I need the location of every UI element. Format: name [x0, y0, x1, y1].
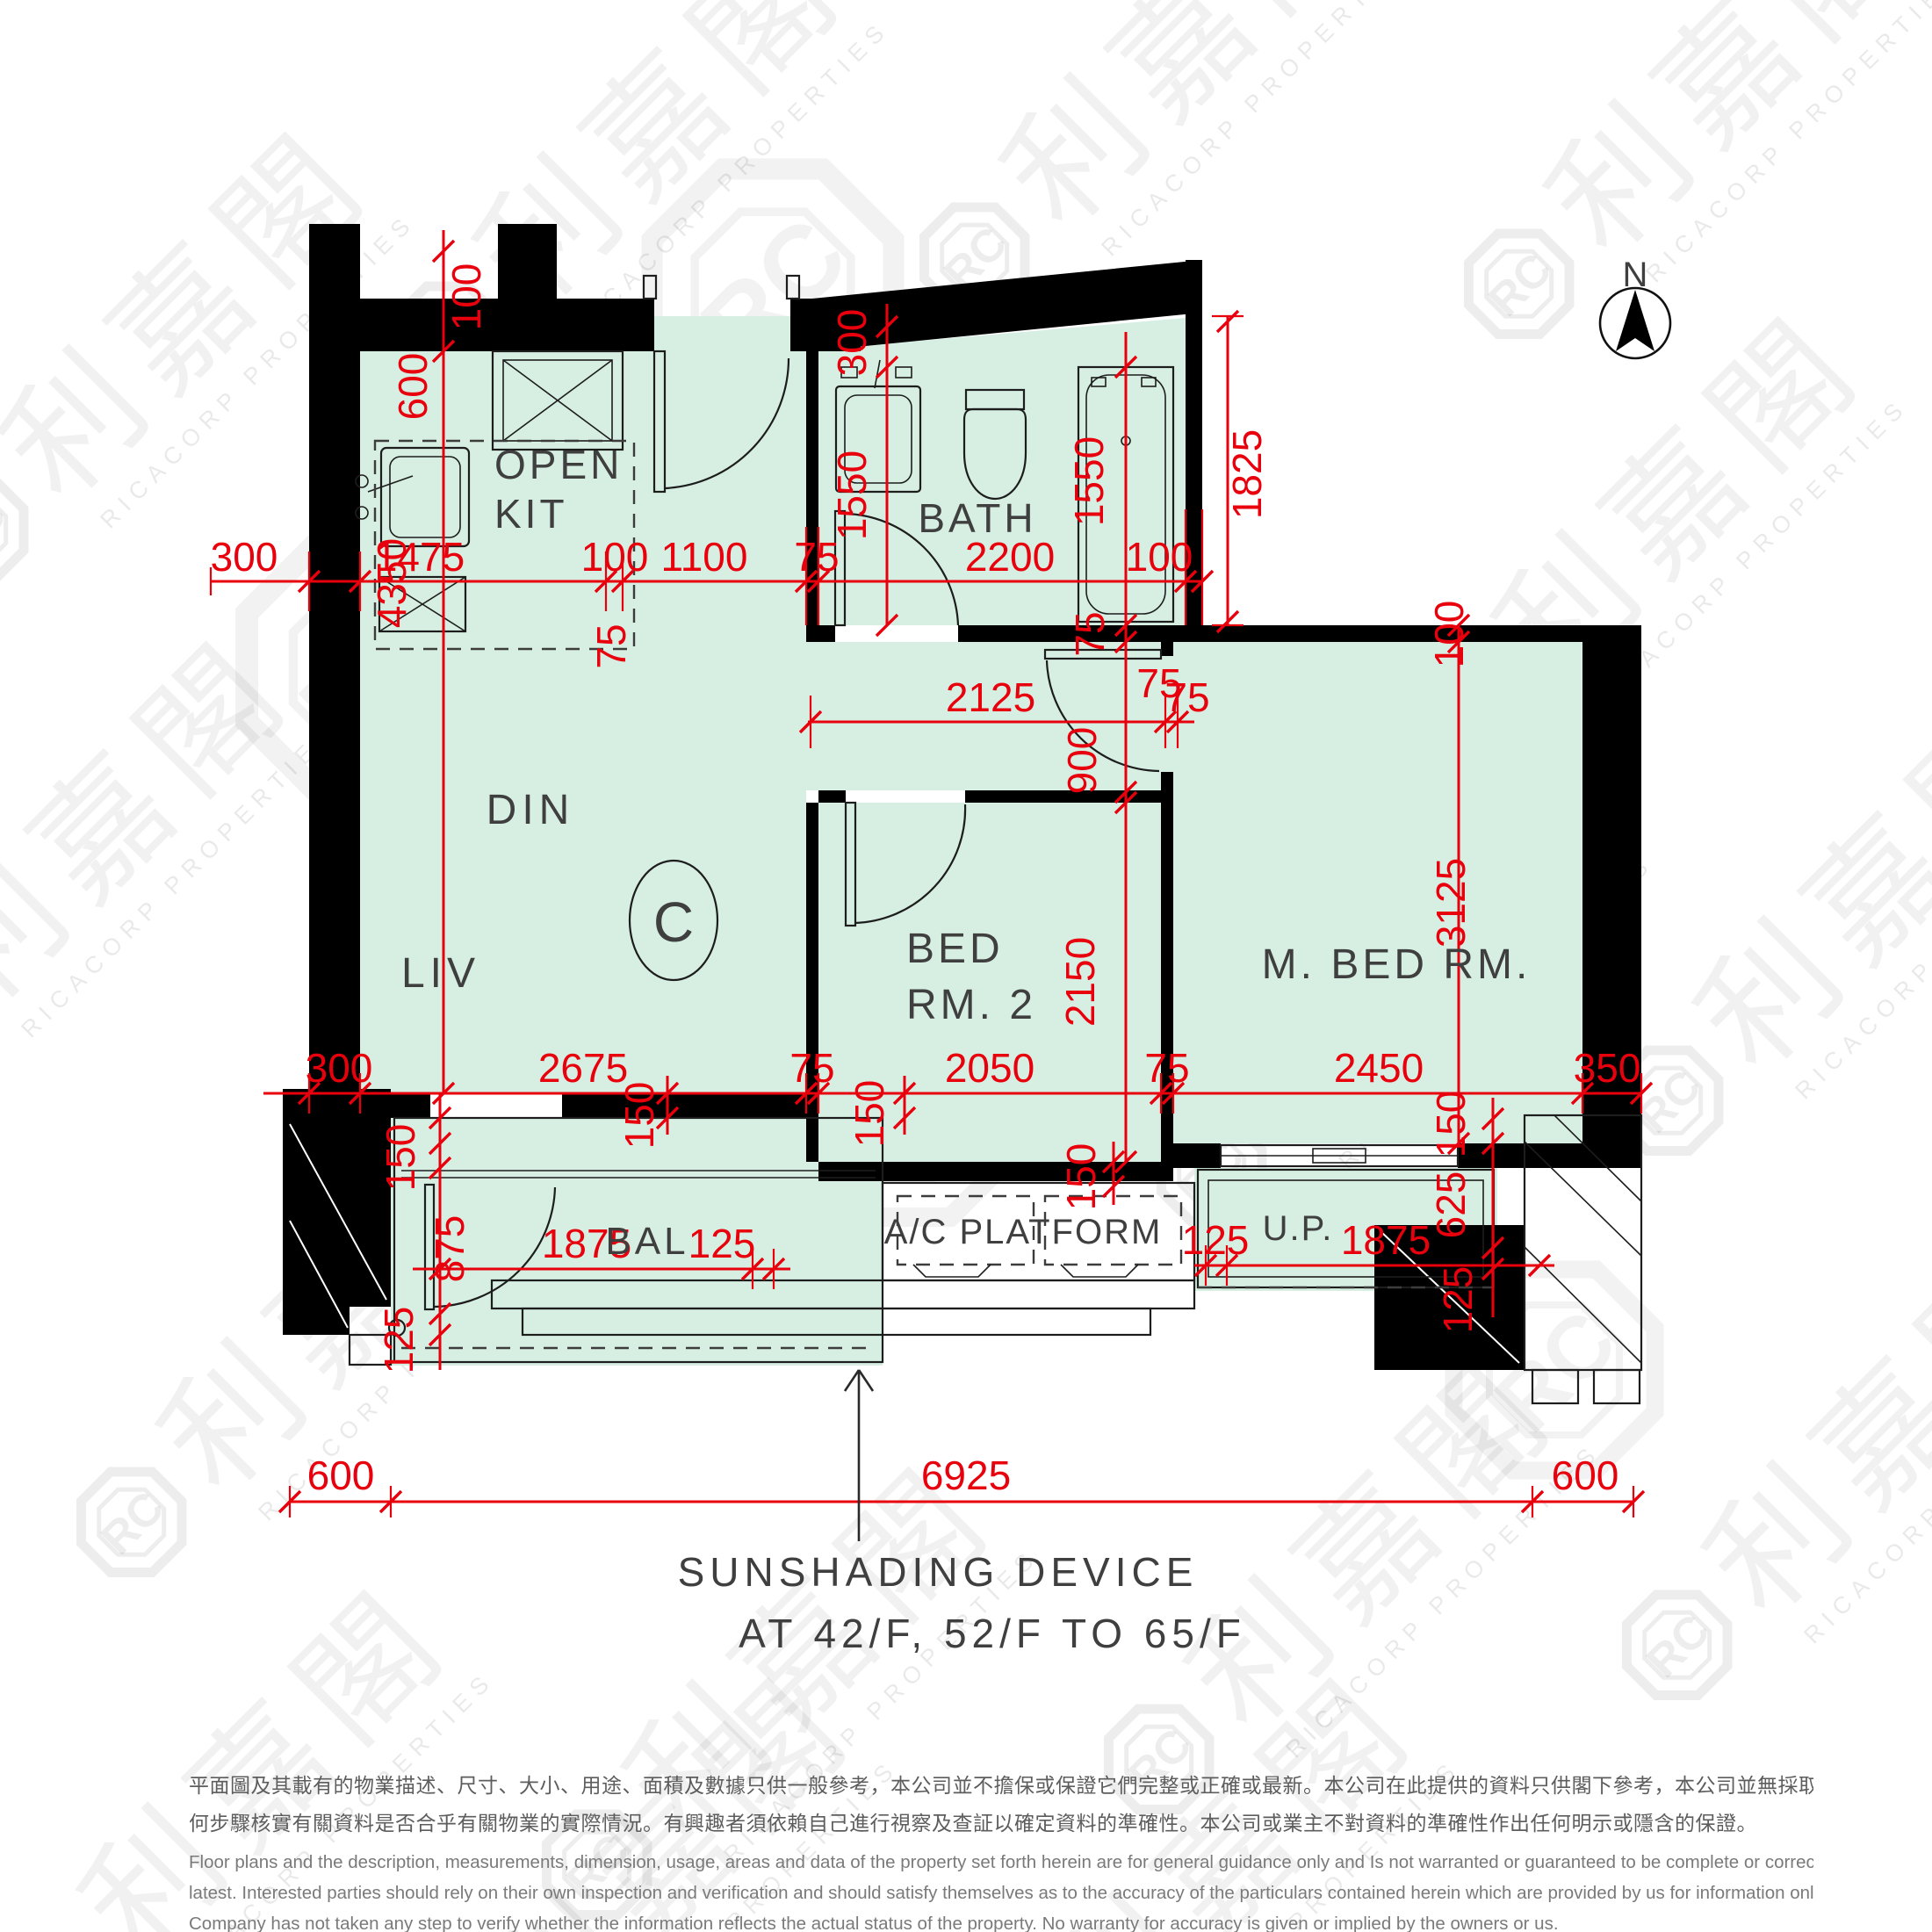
dimension-label: 150	[1428, 1091, 1474, 1158]
svg-text:利嘉閣: 利嘉閣	[1671, 671, 1932, 1096]
dimension-label: 75	[1144, 1045, 1189, 1091]
room-label: AT 42/F, 52/F TO 65/F	[739, 1611, 1246, 1656]
dimension-label: 600	[1552, 1453, 1619, 1498]
disclaimer-en-line1: Floor plans and the description, measure…	[189, 1847, 1813, 1878]
dimension-label: 75	[1067, 611, 1113, 656]
north-arrow-icon	[1600, 288, 1670, 358]
room-label: BATH	[918, 495, 1036, 541]
floorplan-page: RC利嘉閣RICACORP PROPERTIESRC利嘉閣RICACORP PR…	[0, 0, 1932, 1932]
floor-plan-drawing: RC利嘉閣RICACORP PROPERTIESRC利嘉閣RICACORP PR…	[0, 0, 1932, 1932]
dimension-label: 150	[616, 1082, 662, 1150]
dimension-label: 1875	[1341, 1217, 1431, 1263]
dimension-label: 125	[376, 1307, 422, 1374]
dimension-label: 1100	[661, 534, 748, 580]
room-label: RM. 2	[906, 982, 1036, 1028]
dimension-label: 100	[1426, 601, 1472, 668]
room-label: BAL	[605, 1220, 688, 1263]
dimension-label: 2450	[1334, 1045, 1424, 1091]
dimension-label: 900	[1059, 727, 1105, 795]
room-label: A/C PLATFORM	[884, 1213, 1163, 1251]
dimension-label: 625	[1428, 1171, 1474, 1239]
dimension-label: 600	[390, 353, 436, 421]
dimension-label: 1825	[1224, 429, 1270, 519]
dimension-label: 1550	[1066, 436, 1112, 526]
dimension-label: 2150	[1057, 937, 1103, 1027]
room-label: OPEN	[494, 442, 623, 487]
room-label: LIV	[401, 950, 480, 997]
dimension-label: 350	[1574, 1045, 1641, 1091]
dimension-label: 4350	[369, 538, 415, 628]
dimension-label: 75	[789, 1045, 834, 1091]
dimension-label: 100	[581, 534, 649, 580]
room-label: N	[1623, 256, 1648, 294]
disclaimer-zh-line1: 平面圖及其載有的物業描述、尺寸、大小、用途、面積及數據只供一般參考，本公司並不擔…	[189, 1767, 1813, 1805]
dimension-label: 300	[306, 1045, 373, 1091]
room-label: BED	[906, 926, 1004, 972]
dimension-label: 300	[211, 534, 278, 580]
dimension-label: 2125	[946, 674, 1035, 720]
dimension-label: 2050	[945, 1045, 1034, 1091]
svg-text:RC: RC	[1479, 244, 1561, 327]
dimension-label: 150	[1058, 1143, 1104, 1211]
dimension-label: 125	[688, 1221, 756, 1266]
svg-text:RC: RC	[1637, 1605, 1719, 1688]
dimension-label: 125	[1182, 1217, 1250, 1263]
dimension-label: 1550	[829, 451, 875, 540]
watermark-tile: RC利嘉閣RICACORP PROPERTIES	[1588, 1215, 1932, 1753]
dimension-label: 2675	[538, 1045, 628, 1091]
svg-text:RC: RC	[91, 1482, 174, 1565]
dimension-label: 125	[1435, 1266, 1481, 1334]
dimension-label: 100	[1126, 534, 1193, 580]
dimension-label: 6925	[921, 1453, 1011, 1498]
dimension-label: 150	[847, 1080, 892, 1148]
disclaimer-en-line3: Company has not taken any step to verify…	[189, 1908, 1813, 1932]
dimension-label: 75	[1136, 660, 1181, 706]
dimension-label: 150	[378, 1124, 423, 1192]
room-label: U.P.	[1263, 1209, 1334, 1248]
watermark-tile: RC利嘉閣RICACORP PROPERTIES	[1430, 0, 1932, 392]
disclaimer-en-line2: latest. Interested parties should rely o…	[189, 1878, 1813, 1908]
dimension-label: 3125	[1428, 858, 1474, 948]
room-label: C	[653, 890, 694, 954]
dimension-label: 300	[829, 309, 875, 377]
dimension-label: 100	[443, 263, 489, 331]
svg-text:利嘉閣: 利嘉閣	[0, 609, 321, 1034]
dimension-label: 875	[427, 1215, 472, 1283]
dimension-label: 75	[588, 624, 634, 668]
room-label: M. BED RM.	[1262, 941, 1532, 988]
dimension-label: 600	[307, 1453, 375, 1498]
svg-text:利嘉閣: 利嘉閣	[1680, 1215, 1932, 1640]
room-label: SUNSHADING DEVICE	[678, 1549, 1199, 1595]
room-label: DIN	[487, 787, 575, 833]
room-label: KIT	[494, 491, 568, 537]
disclaimer-zh-line2: 何步驟核實有關資料是否合乎有關物業的實際情況。有興趣者須依賴自己進行視察及查証以…	[189, 1805, 1813, 1842]
